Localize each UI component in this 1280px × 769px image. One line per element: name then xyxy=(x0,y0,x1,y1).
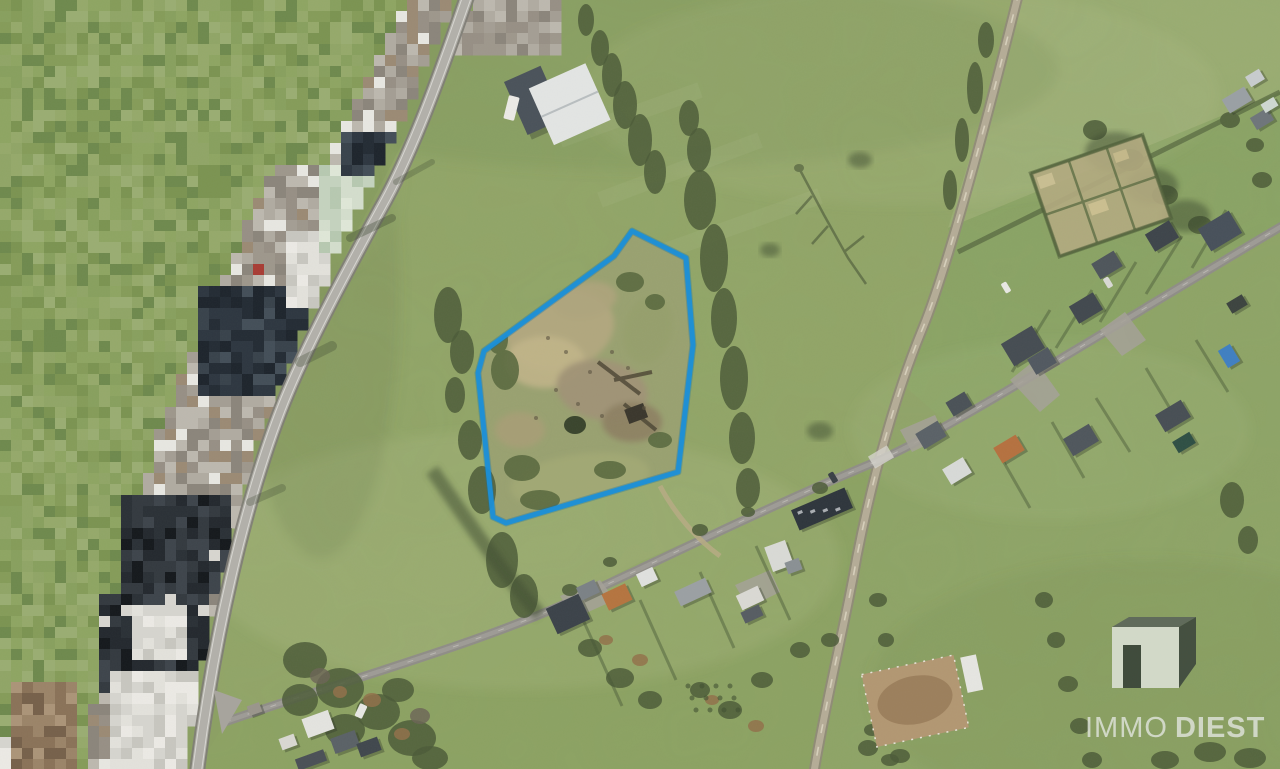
watermark-immo: IMMO xyxy=(1085,712,1168,744)
watermark-diest: DIEST xyxy=(1175,712,1265,744)
watermark-text: IMMODIEST xyxy=(1085,712,1265,744)
aerial-photo-canvas: IMMODIEST xyxy=(0,0,1280,769)
aerial-photo: IMMODIEST xyxy=(0,0,1280,769)
immo-diest-logo-icon xyxy=(1112,617,1196,688)
photo-grain xyxy=(0,0,1280,769)
